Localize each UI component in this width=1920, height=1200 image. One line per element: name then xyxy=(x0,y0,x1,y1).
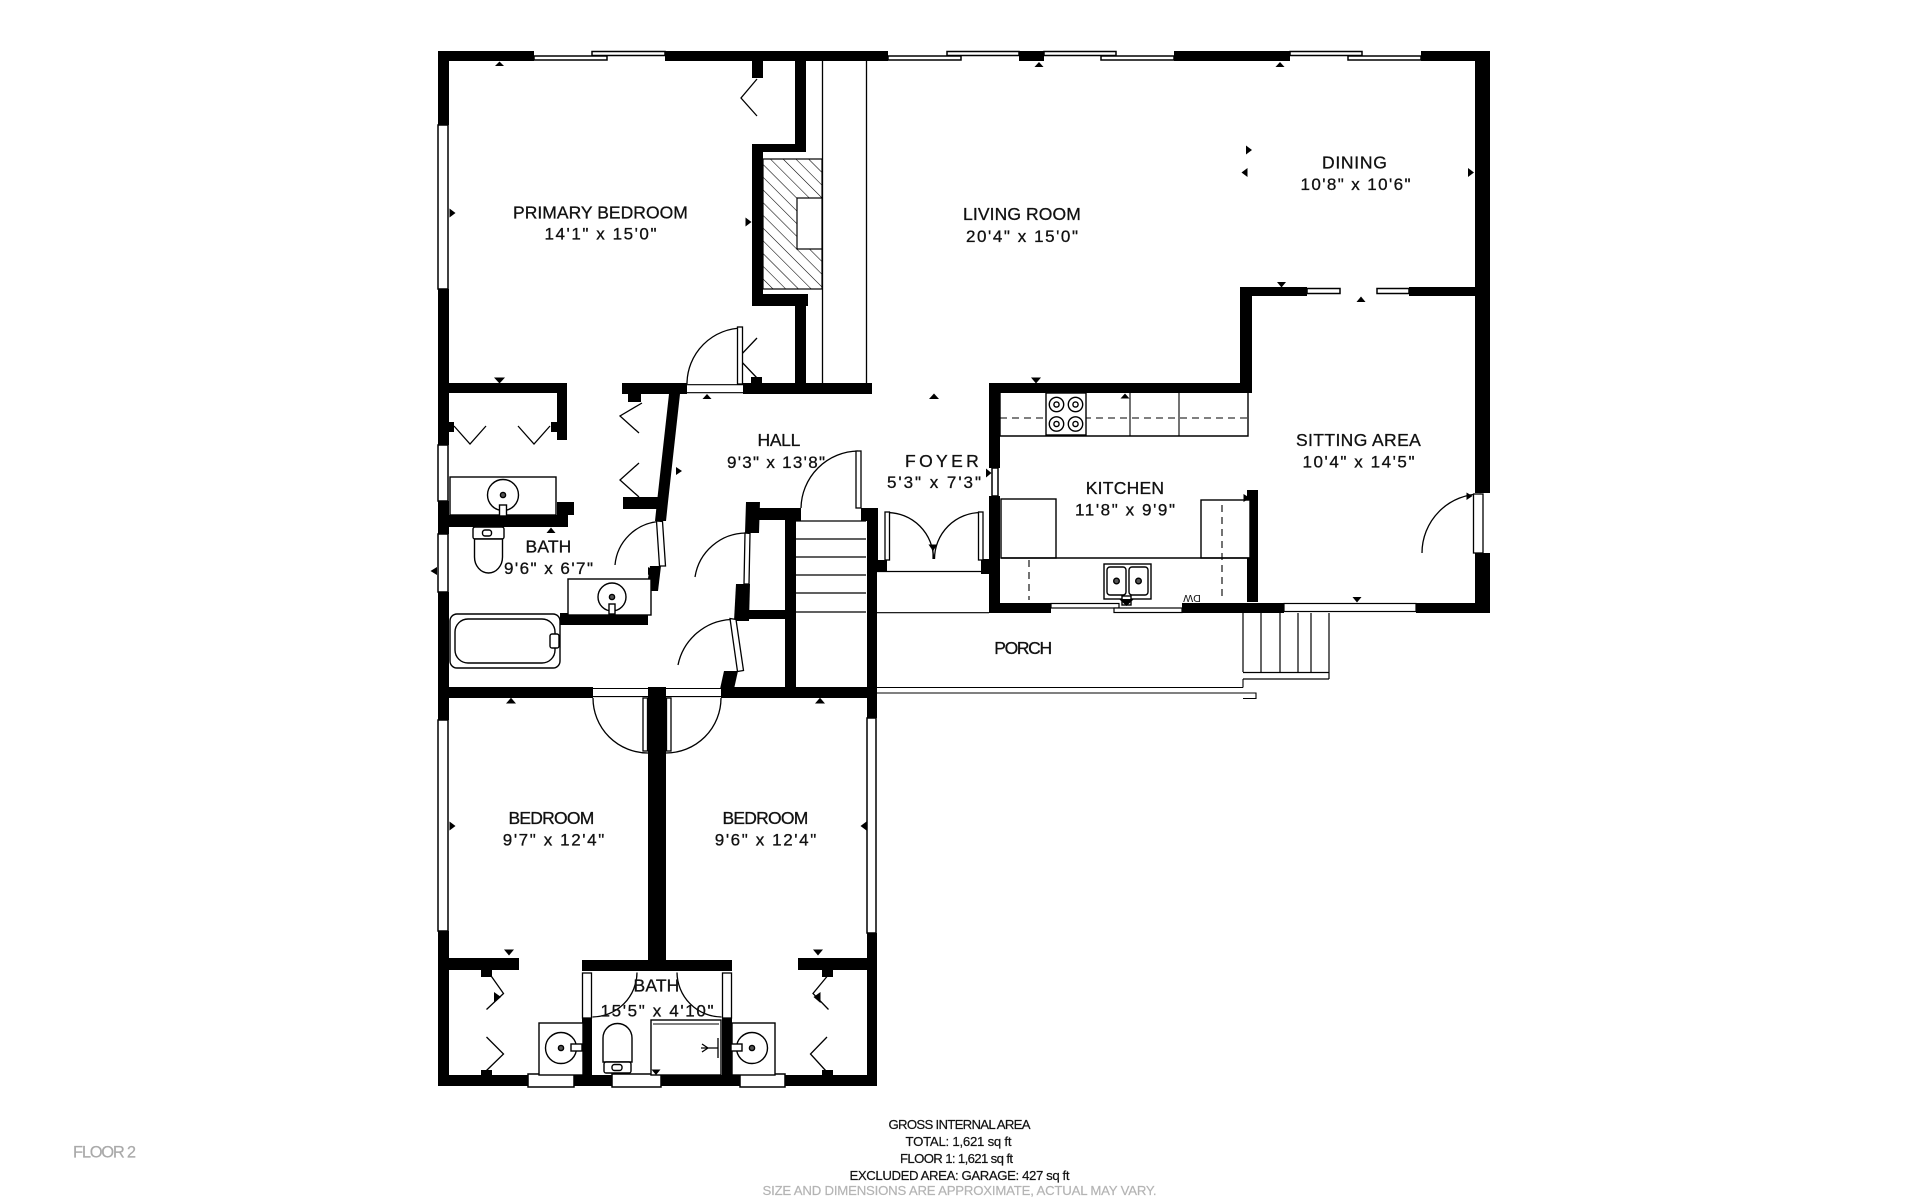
svg-text:10'4" x 14'5": 10'4" x 14'5" xyxy=(1303,453,1415,472)
svg-text:HALL: HALL xyxy=(758,430,801,450)
svg-text:DINING: DINING xyxy=(1322,153,1387,173)
svg-text:20'4" x 15'0": 20'4" x 15'0" xyxy=(966,227,1078,246)
svg-text:TOTAL: 1,621 sq ft: TOTAL: 1,621 sq ft xyxy=(906,1134,1012,1149)
svg-text:SITTING AREA: SITTING AREA xyxy=(1296,430,1421,450)
svg-text:LIVING ROOM: LIVING ROOM xyxy=(963,204,1081,224)
svg-text:GROSS INTERNAL AREA: GROSS INTERNAL AREA xyxy=(889,1117,1031,1132)
svg-text:9'6" x 6'7": 9'6" x 6'7" xyxy=(504,559,593,578)
svg-text:15'5" x 4'10": 15'5" x 4'10" xyxy=(601,1002,714,1021)
svg-text:14'1" x 15'0": 14'1" x 15'0" xyxy=(545,225,657,244)
svg-text:BATH: BATH xyxy=(634,976,680,996)
svg-text:9'6" x 12'4": 9'6" x 12'4" xyxy=(715,831,817,850)
svg-text:5'3" x 7'3": 5'3" x 7'3" xyxy=(887,473,981,492)
svg-text:SIZE AND DIMENSIONS ARE APPROX: SIZE AND DIMENSIONS ARE APPROXIMATE, ACT… xyxy=(763,1183,1157,1198)
svg-text:EXCLUDED AREA: GARAGE: 427 sq: EXCLUDED AREA: GARAGE: 427 sq ft xyxy=(850,1168,1070,1183)
svg-text:9'3" x 13'8": 9'3" x 13'8" xyxy=(727,453,825,472)
svg-text:BATH: BATH xyxy=(526,537,572,557)
svg-text:FLOOR 2: FLOOR 2 xyxy=(73,1144,136,1162)
svg-text:PRIMARY BEDROOM: PRIMARY BEDROOM xyxy=(513,203,688,223)
svg-text:10'8" x 10'6": 10'8" x 10'6" xyxy=(1301,175,1411,194)
svg-text:DW: DW xyxy=(1183,592,1201,604)
svg-text:FLOOR 1: 1,621 sq ft: FLOOR 1: 1,621 sq ft xyxy=(900,1151,1013,1166)
svg-text:KITCHEN: KITCHEN xyxy=(1086,478,1165,498)
svg-text:11'8" x 9'9": 11'8" x 9'9" xyxy=(1075,501,1175,520)
svg-text:9'7" x 12'4": 9'7" x 12'4" xyxy=(503,831,605,850)
svg-text:BEDROOM: BEDROOM xyxy=(509,808,595,828)
svg-text:PORCH: PORCH xyxy=(994,638,1052,658)
svg-text:BEDROOM: BEDROOM xyxy=(723,808,809,828)
